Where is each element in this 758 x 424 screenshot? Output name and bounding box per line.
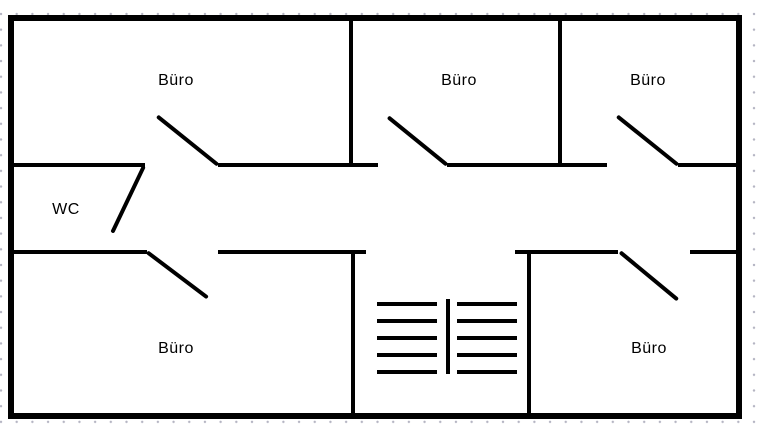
room-label-wc: WC	[52, 202, 80, 218]
room-label-buero-top-right: Büro	[630, 73, 666, 89]
wall-corridor-bottom-mid-left	[218, 250, 366, 254]
wall-corridor-bottom-east	[690, 250, 742, 254]
floor-plan: BüroBüroBüroWCBüroBüro	[0, 0, 758, 424]
room-label-buero-top-middle: Büro	[441, 73, 477, 89]
wall-stairwell-left	[351, 250, 355, 419]
wall-corridor-top-east	[678, 163, 742, 167]
stair-step	[457, 370, 517, 374]
stair-step	[377, 353, 437, 357]
room-label-buero-top-left: Büro	[158, 73, 194, 89]
wall-corridor-top-west	[8, 163, 145, 167]
stair-step	[377, 370, 437, 374]
wall-corridor-bottom-west	[8, 250, 147, 254]
stair-step	[377, 336, 437, 340]
wall-divider-top-right	[558, 15, 562, 167]
stair-step	[457, 353, 517, 357]
room-label-buero-bottom-right: Büro	[631, 341, 667, 357]
wall-outer-right	[736, 15, 742, 419]
floor-plan-canvas: BüroBüroBüroWCBüroBüro	[0, 0, 758, 424]
stair-step	[457, 336, 517, 340]
wall-divider-top-left	[349, 15, 353, 167]
wall-corridor-top-mid-right	[447, 163, 607, 167]
wall-stairwell-right	[527, 250, 531, 419]
stair-divider	[446, 299, 450, 374]
wall-outer-bottom	[8, 413, 742, 419]
wall-outer-left	[8, 15, 14, 419]
room-label-buero-bottom-left: Büro	[158, 341, 194, 357]
wall-outer-top	[8, 15, 742, 21]
stair-step	[377, 319, 437, 323]
stair-step	[457, 302, 517, 306]
stair-step	[377, 302, 437, 306]
wall-corridor-top-mid-left	[218, 163, 378, 167]
stair-step	[457, 319, 517, 323]
